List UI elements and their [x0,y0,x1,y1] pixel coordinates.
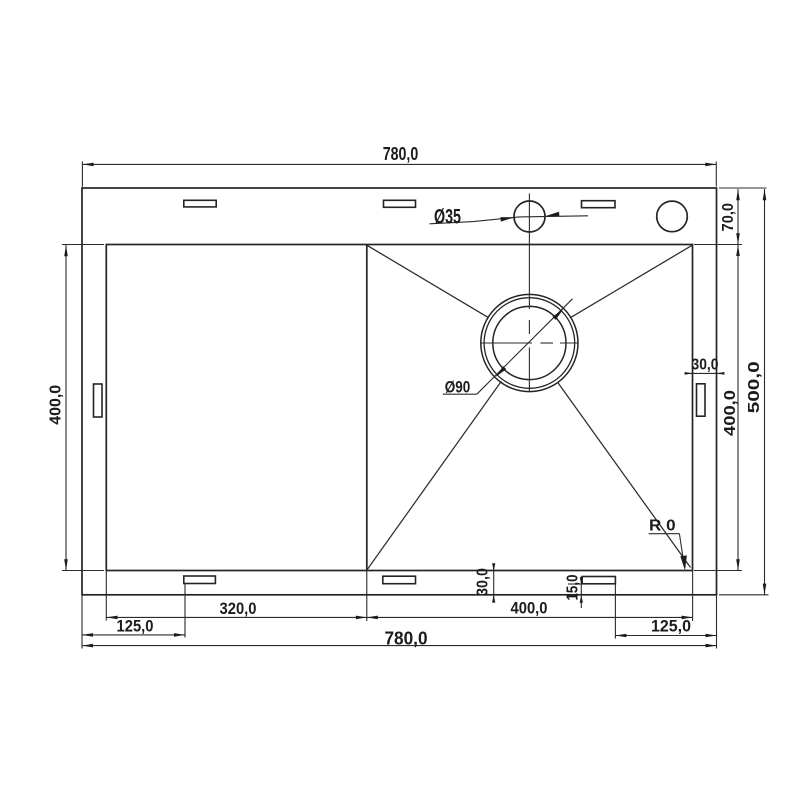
svg-text:400,0: 400,0 [511,599,548,618]
svg-text:320,0: 320,0 [220,599,257,618]
svg-text:30,0: 30,0 [474,568,491,596]
svg-text:Ø35: Ø35 [434,205,461,229]
svg-text:780,0: 780,0 [383,144,419,164]
svg-text:125,0: 125,0 [651,616,691,635]
svg-text:400,0: 400,0 [722,390,739,436]
svg-text:500,0: 500,0 [746,361,763,413]
svg-text:30,0: 30,0 [692,357,719,374]
svg-text:R 0: R 0 [649,518,676,535]
svg-text:70,0: 70,0 [720,203,737,232]
svg-text:400,0: 400,0 [47,385,64,425]
svg-text:125,0: 125,0 [117,617,154,636]
svg-text:15,0: 15,0 [564,574,581,600]
svg-text:780,0: 780,0 [385,628,428,648]
svg-text:Ø90: Ø90 [445,378,471,396]
